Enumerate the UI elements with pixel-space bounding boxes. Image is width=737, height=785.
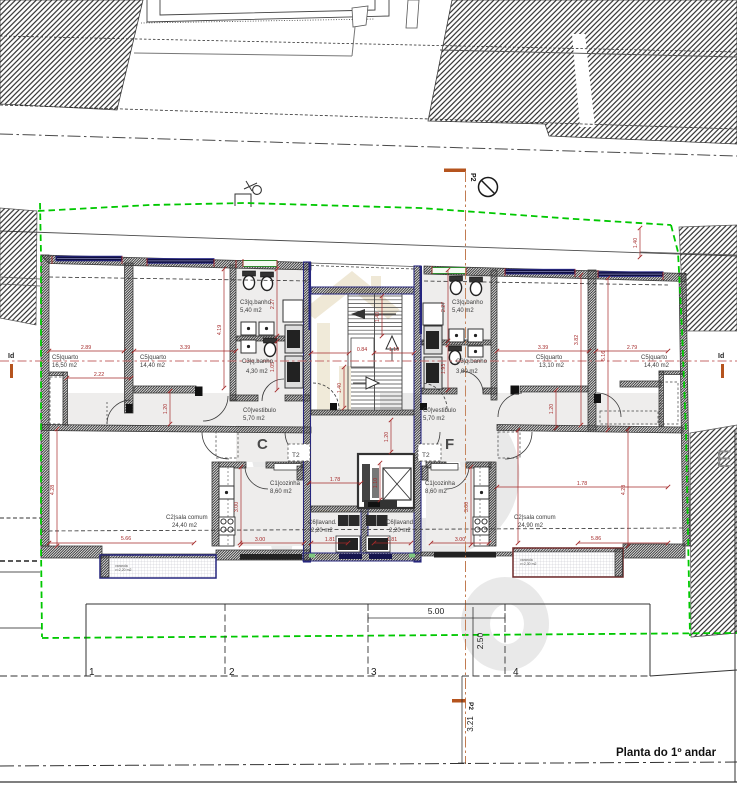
svg-text:P2: P2 [467, 702, 474, 710]
svg-text:2,20 m2: 2,20 m2 [389, 528, 411, 534]
svg-text:4.28: 4.28 [50, 485, 56, 495]
svg-text:1.40: 1.40 [633, 238, 639, 248]
svg-text:P2: P2 [469, 173, 476, 182]
svg-text:1.20: 1.20 [384, 432, 390, 442]
svg-text:C5|quarto: C5|quarto [52, 355, 79, 361]
svg-text:24,90 m2: 24,90 m2 [518, 523, 544, 529]
svg-text:2,20 m2: 2,20 m2 [311, 528, 333, 534]
svg-text:E: E [716, 446, 732, 473]
svg-text:8,60 m2: 8,60 m2 [425, 489, 447, 495]
svg-text:1.93: 1.93 [441, 364, 447, 374]
svg-text:C6|lavand.: C6|lavand. [308, 520, 337, 526]
svg-text:T2: T2 [292, 452, 300, 459]
svg-text:3.21: 3.21 [466, 716, 475, 732]
svg-text:1.10: 1.10 [389, 347, 399, 353]
svg-text:3.82: 3.82 [574, 335, 580, 345]
svg-text:1.81: 1.81 [325, 537, 335, 543]
svg-text:Id: Id [8, 353, 14, 360]
svg-text:3: 3 [371, 667, 377, 678]
svg-text:C0|vestibulo: C0|vestibulo [243, 408, 277, 414]
svg-text:3.39: 3.39 [180, 345, 190, 351]
svg-text:4.28: 4.28 [621, 485, 627, 495]
svg-text:C1|cozinha: C1|cozinha [425, 481, 456, 487]
svg-text:3.00: 3.00 [234, 502, 240, 512]
svg-text:Id: Id [718, 353, 724, 360]
svg-text:C3|q.banho: C3|q.banho [456, 359, 488, 365]
svg-text:3.00: 3.00 [464, 502, 470, 512]
svg-text:2: 2 [229, 667, 235, 678]
svg-text:4,30 m2: 4,30 m2 [246, 369, 268, 375]
svg-text:C3|q.banho: C3|q.banho [242, 359, 274, 365]
svg-text:C3|q.banho: C3|q.banho [452, 300, 484, 306]
svg-text:v=2,20 m2: v=2,20 m2 [115, 568, 131, 572]
svg-text:4.19: 4.19 [217, 325, 223, 335]
svg-text:1.78: 1.78 [330, 477, 340, 483]
svg-text:2.89: 2.89 [81, 345, 91, 351]
svg-text:5,40 m2: 5,40 m2 [452, 308, 474, 314]
svg-text:T2: T2 [422, 452, 430, 459]
svg-text:2.50: 2.50 [475, 632, 485, 649]
svg-text:3,80 m2: 3,80 m2 [456, 369, 478, 375]
svg-text:5.16: 5.16 [601, 351, 607, 361]
svg-text:1.10: 1.10 [373, 478, 379, 488]
svg-text:F: F [445, 436, 454, 453]
svg-text:5,40 m2: 5,40 m2 [240, 308, 262, 314]
svg-text:C6|lavand.: C6|lavand. [386, 520, 415, 526]
svg-text:1.40: 1.40 [375, 312, 381, 322]
svg-text:2.27: 2.27 [441, 302, 447, 312]
svg-text:14,40 m2: 14,40 m2 [140, 363, 166, 369]
svg-text:8,60 m2: 8,60 m2 [270, 489, 292, 495]
svg-text:2.79: 2.79 [627, 345, 637, 351]
svg-text:5.86: 5.86 [591, 536, 601, 542]
svg-text:14,40 m2: 14,40 m2 [644, 363, 670, 369]
svg-text:1: 1 [89, 667, 95, 678]
svg-text:5.66: 5.66 [121, 536, 131, 542]
svg-text:C5|quarto: C5|quarto [536, 355, 563, 361]
svg-text:1.78: 1.78 [577, 481, 587, 487]
svg-text:C5|quarto: C5|quarto [641, 355, 668, 361]
svg-text:C3|q.banho: C3|q.banho [240, 300, 272, 306]
svg-text:5.00: 5.00 [428, 606, 445, 616]
svg-text:v=2,30 m2: v=2,30 m2 [520, 562, 536, 566]
svg-text:0.84: 0.84 [357, 347, 367, 353]
svg-text:24,40 m2: 24,40 m2 [172, 523, 198, 529]
svg-text:1.20: 1.20 [163, 404, 169, 414]
svg-text:13,10 m2: 13,10 m2 [539, 363, 565, 369]
svg-text:C2|sala comum: C2|sala comum [514, 515, 556, 521]
svg-text:5,70 m2: 5,70 m2 [243, 416, 265, 422]
svg-text:3.39: 3.39 [538, 345, 548, 351]
svg-text:C0|vestibulo: C0|vestibulo [423, 408, 457, 414]
svg-text:1.81: 1.81 [387, 537, 397, 543]
svg-text:C5|quarto: C5|quarto [140, 355, 167, 361]
svg-text:C1|cozinha: C1|cozinha [270, 481, 301, 487]
svg-text:16,50 m2: 16,50 m2 [52, 363, 78, 369]
svg-text:C2|sala comum: C2|sala comum [166, 515, 208, 521]
svg-text:1.40: 1.40 [337, 383, 343, 393]
svg-text:2.22: 2.22 [94, 372, 104, 378]
svg-text:1.20: 1.20 [549, 404, 555, 414]
svg-text:3.00: 3.00 [255, 537, 265, 543]
svg-text:5,70 m2: 5,70 m2 [423, 416, 445, 422]
svg-text:3.00: 3.00 [455, 537, 465, 543]
svg-text:4: 4 [513, 667, 519, 678]
svg-text:Planta do 1º andar: Planta do 1º andar [616, 747, 717, 759]
svg-text:C: C [257, 436, 268, 453]
